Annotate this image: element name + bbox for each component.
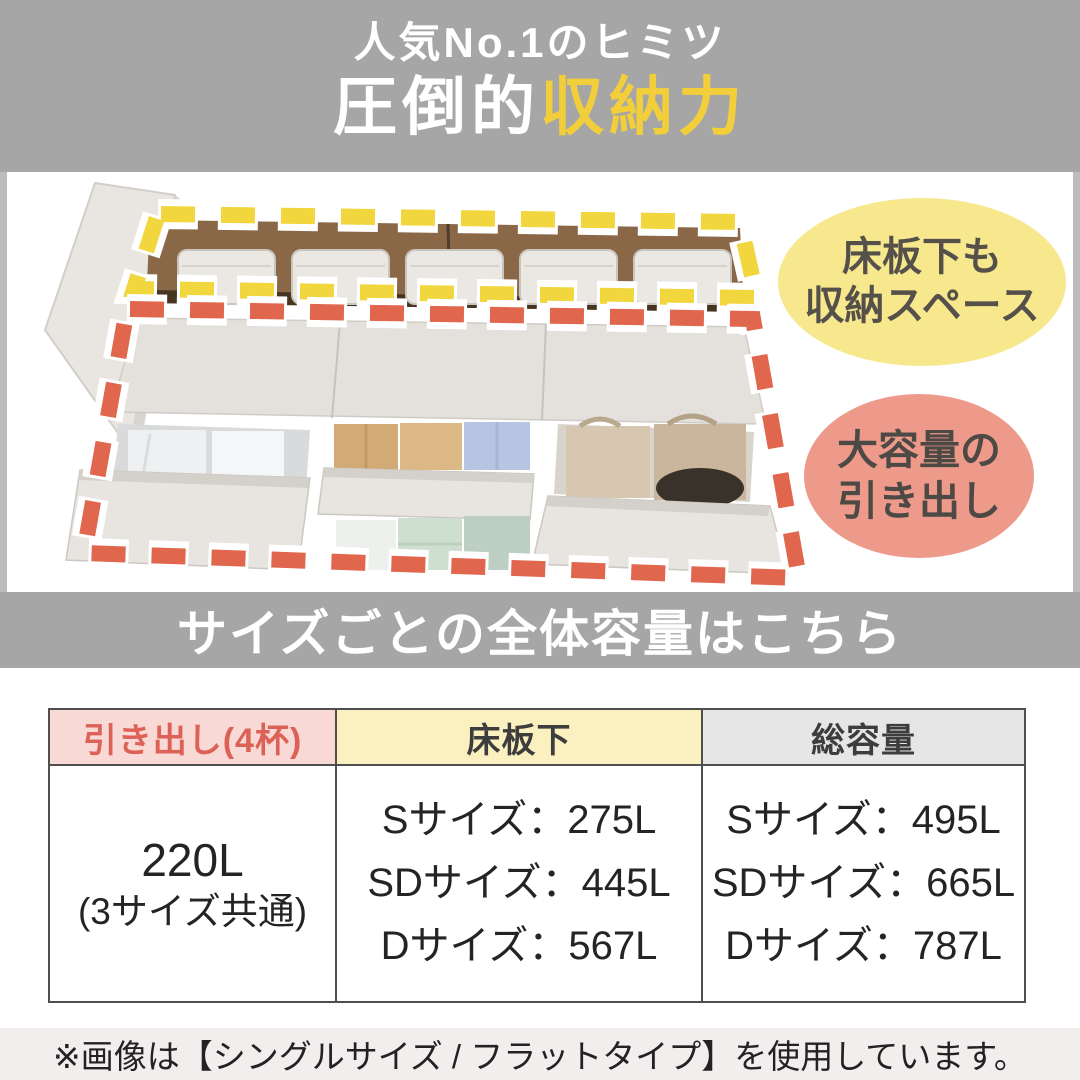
callout-drawers: 大容量の 引き出し [804, 394, 1034, 558]
callout-underfloor: 床板下も 収納スペース [778, 198, 1066, 366]
main-title: 圧倒的収納力 [0, 74, 1080, 141]
total-values: Sサイズ：495L SDサイズ：665L Dサイズ：787L [704, 789, 1023, 978]
underfloor-d: Dサイズ：567L [338, 915, 700, 978]
capacity-table: 引き出し(4杯) 床板下 総容量 220L (3サイズ共通) Sサイズ：275L… [48, 708, 1026, 1003]
bed-base-panels [110, 318, 766, 424]
header-underfloor: 床板下 [336, 709, 702, 765]
footnote-text: ※画像は【シングルサイズ / フラットタイプ】を使用しています。 [53, 1030, 1027, 1078]
header-drawers: 引き出し(4杯) [49, 709, 336, 765]
drawers-note: (3サイズ共通) [51, 889, 334, 935]
callout-drawers-line2: 引き出し [837, 476, 1001, 527]
cell-underfloor: Sサイズ：275L SDサイズ：445L Dサイズ：567L [336, 765, 702, 1002]
underfloor-sd: SDサイズ：445L [338, 852, 700, 915]
capacity-table-header-row: 引き出し(4杯) 床板下 総容量 [49, 709, 1025, 765]
total-sd: SDサイズ：665L [704, 852, 1023, 915]
bed-photo-section: 床板下も 収納スペース 大容量の 引き出し [0, 172, 1080, 592]
callout-underfloor-line1: 床板下も [842, 233, 1002, 282]
callout-drawers-line1: 大容量の [837, 425, 1001, 476]
section-banner-title: サイズごとの全体容量はこちら [177, 594, 903, 666]
underfloor-s: Sサイズ：275L [338, 789, 700, 852]
underfloor-values: Sサイズ：275L SDサイズ：445L Dサイズ：567L [338, 789, 700, 978]
header-total: 総容量 [702, 709, 1025, 765]
total-d: Dサイズ：787L [704, 915, 1023, 978]
ad-page: 人気No.1のヒミツ 圧倒的収納力 [0, 0, 1080, 1080]
main-title-white: 圧倒的 [333, 71, 540, 143]
main-title-accent: 収納力 [540, 71, 747, 143]
top-banner: 人気No.1のヒミツ 圧倒的収納力 [0, 0, 1080, 172]
cell-total: Sサイズ：495L SDサイズ：665L Dサイズ：787L [702, 765, 1025, 1002]
capacity-table-row: 220L (3サイズ共通) Sサイズ：275L SDサイズ：445L Dサイズ：… [49, 765, 1025, 1002]
cell-drawers: 220L (3サイズ共通) [49, 765, 336, 1002]
drawer-middle-upper [318, 422, 534, 520]
banner-subtitle: 人気No.1のヒミツ [0, 0, 1080, 66]
section-banner: サイズごとの全体容量はこちら [0, 592, 1080, 668]
footnote-bar: ※画像は【シングルサイズ / フラットタイプ】を使用しています。 [0, 1028, 1080, 1080]
drawers-value: 220L [51, 832, 334, 890]
drawer-right [532, 416, 788, 574]
total-s: Sサイズ：495L [704, 789, 1023, 852]
callout-underfloor-line2: 収納スペース [804, 282, 1039, 331]
